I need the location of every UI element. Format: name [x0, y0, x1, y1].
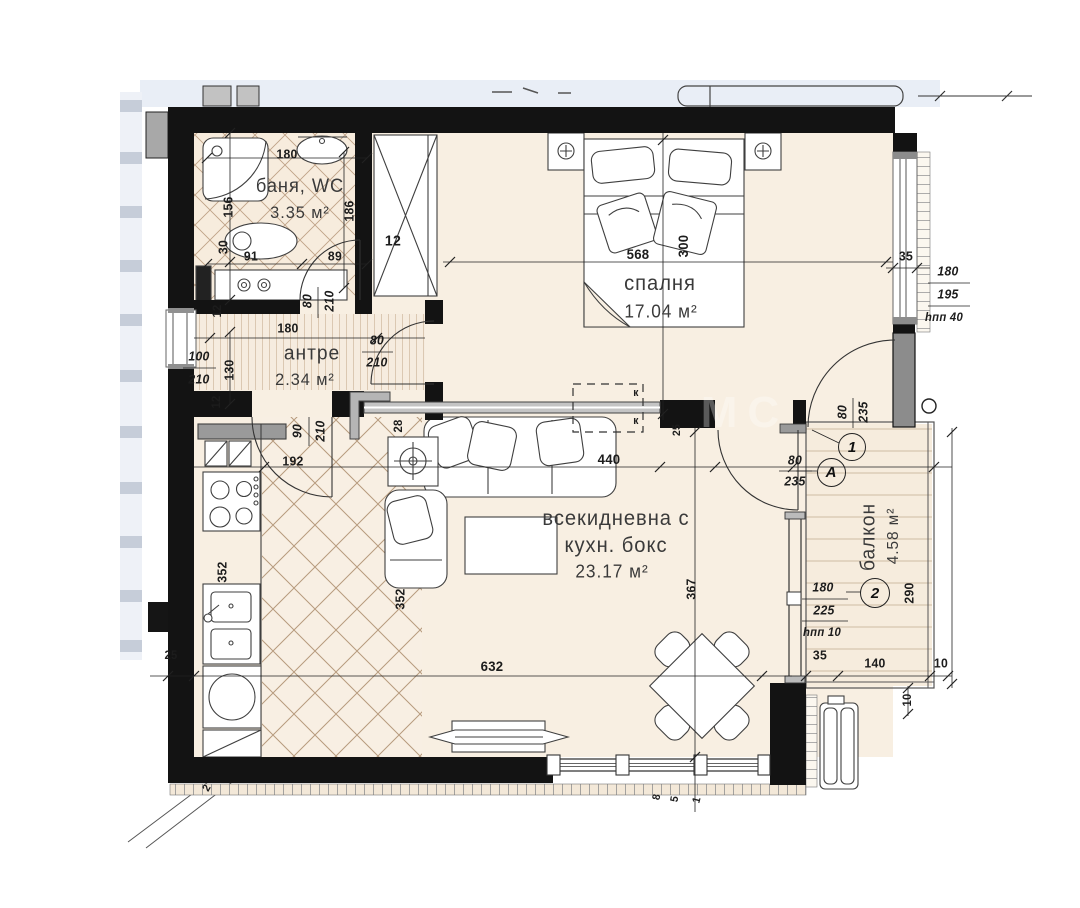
- washbasin: [297, 136, 347, 164]
- room-living-name-2: кухн. бокс: [564, 534, 667, 558]
- watermark: МС: [701, 388, 789, 438]
- armchair: [385, 490, 447, 588]
- toilet: [225, 223, 297, 259]
- nightstand-right: [745, 133, 781, 170]
- washing-machine: [196, 266, 347, 302]
- room-bathroom-name: баня, WC: [256, 176, 344, 198]
- room-balcony-area: 4.58 м²: [885, 508, 903, 565]
- hallway-window: [166, 308, 196, 369]
- wardrobe: [374, 135, 437, 296]
- sofa: [424, 414, 616, 497]
- corner-cabinet: [203, 730, 261, 757]
- ac-unit: [820, 696, 858, 789]
- room-bathroom-area: 3.35 м²: [270, 203, 330, 223]
- living-bottom-window: [547, 755, 770, 775]
- floor-plan-drawing: [0, 0, 1080, 908]
- dining-set: [650, 628, 755, 744]
- marker-1: 1: [838, 433, 866, 461]
- room-hallway-name: антре: [284, 343, 340, 366]
- room-living-name-1: всекидневна с: [542, 507, 689, 531]
- nightstand-left: [548, 133, 584, 170]
- room-bedroom-area: 17.04 м²: [624, 302, 697, 323]
- stove: [203, 472, 260, 531]
- balcony-drain: [922, 399, 936, 413]
- room-hallway-area: 2.34 м²: [275, 370, 335, 390]
- kitchen-sink: [203, 584, 260, 664]
- side-table: [388, 437, 438, 486]
- room-living-area: 23.17 м²: [575, 562, 648, 583]
- bedroom-balcony-door: [893, 333, 915, 427]
- dishwasher: [203, 666, 261, 728]
- marker-А: А: [817, 458, 846, 487]
- marker-2: 2: [860, 578, 890, 608]
- floor-plan: МС 1801563091891861212180100210130128021…: [0, 0, 1080, 908]
- room-bedroom-name: спалня: [624, 272, 696, 296]
- bedroom-window: [893, 152, 917, 324]
- room-balcony-name: балкон: [858, 503, 881, 571]
- bed: [584, 139, 744, 327]
